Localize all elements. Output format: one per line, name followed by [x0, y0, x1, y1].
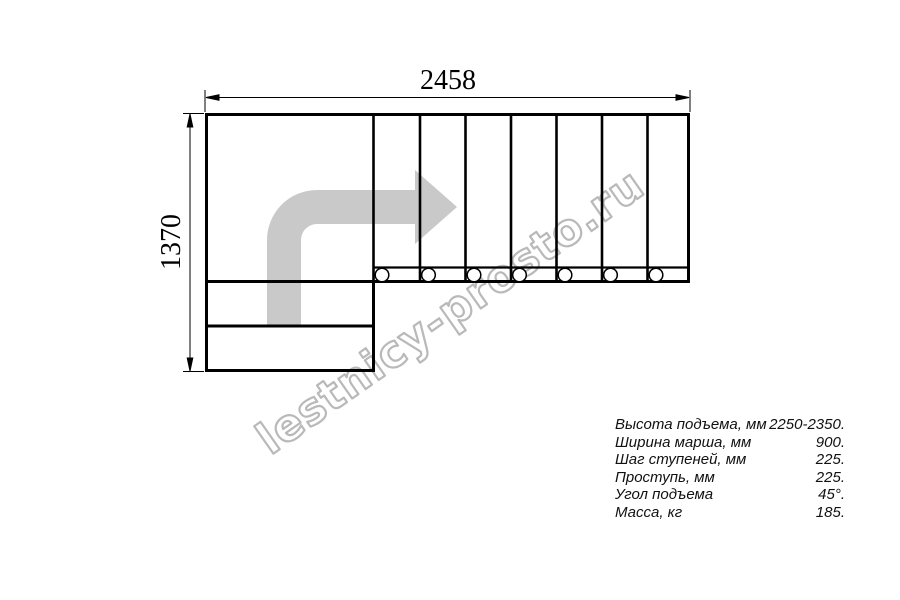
baluster-circle [604, 268, 618, 282]
spec-row: Высота подъема, мм 2250-2350. [615, 416, 845, 434]
spec-row: Шаг ступеней, мм 225. [615, 451, 845, 469]
spec-row: Угол подъема 45°. [615, 486, 845, 504]
baluster-circles [375, 268, 663, 282]
baluster-circle [467, 268, 481, 282]
baluster-circle [513, 268, 527, 282]
spec-table: Высота подъема, мм 2250-2350. Ширина мар… [615, 416, 845, 521]
spec-value: 225. [816, 469, 845, 487]
top-dimension-label: 2458 [420, 65, 476, 97]
spec-value: 225. [816, 451, 845, 469]
arrowhead [187, 114, 193, 127]
arrowhead [676, 95, 689, 101]
spec-value: 45°. [818, 486, 845, 504]
spec-value: 900. [816, 434, 845, 452]
baluster-circle [375, 268, 389, 282]
spec-value: 185. [816, 504, 845, 522]
spec-label: Высота подъема, мм [615, 416, 767, 434]
arrowhead [206, 95, 219, 101]
spec-label: Шаг ступеней, мм [615, 451, 746, 469]
baluster-circle [422, 268, 436, 282]
spec-label: Угол подъема [615, 486, 713, 504]
left-dimension-label: 1370 [156, 214, 188, 270]
spec-value: 2250-2350. [769, 416, 845, 434]
baluster-circle [558, 268, 572, 282]
spec-label: Проступь, мм [615, 469, 715, 487]
spec-row: Масса, кг 185. [615, 504, 845, 522]
spec-label: Ширина марша, мм [615, 434, 751, 452]
stair-drawing-page: lestnicy-prosto.ru [0, 0, 900, 600]
baluster-circle [649, 268, 663, 282]
arrowhead [187, 358, 193, 371]
spec-label: Масса, кг [615, 504, 682, 522]
spec-row: Проступь, мм 225. [615, 469, 845, 487]
spec-row: Ширина марша, мм 900. [615, 434, 845, 452]
